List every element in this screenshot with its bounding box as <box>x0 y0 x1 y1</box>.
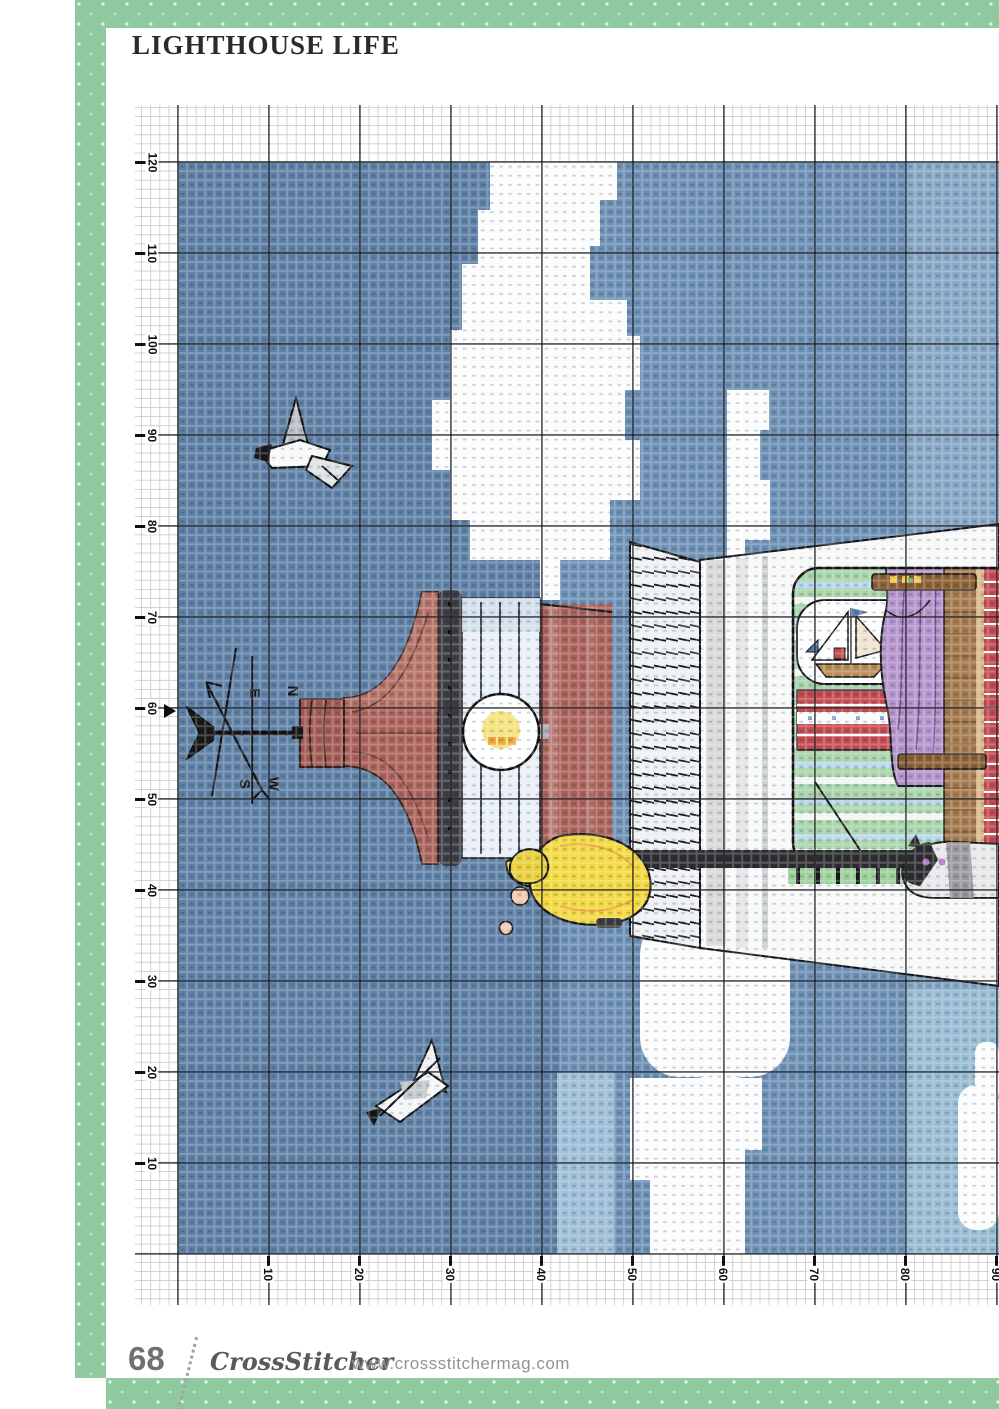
x-axis-label: 50 <box>625 1265 638 1282</box>
y-axis-label: 40 <box>145 881 158 898</box>
y-axis-label: 60 <box>145 699 158 716</box>
page-frame-bottom <box>106 1378 999 1409</box>
page-frame-top <box>75 0 999 28</box>
magazine-page: LIGHTHOUSE LIFE <box>0 0 999 1409</box>
y-axis-label: 90 <box>145 426 158 443</box>
page-title: LIGHTHOUSE LIFE <box>132 30 400 61</box>
x-axis-label: 20 <box>352 1265 365 1282</box>
x-axis-tick: 70 <box>802 1259 826 1289</box>
stitch-design: N E S W <box>135 105 999 1305</box>
y-axis-tick: 90 <box>139 423 165 447</box>
y-axis-label: 100 <box>146 332 159 356</box>
x-axis-label: 40 <box>534 1265 547 1282</box>
x-axis-label: 90 <box>989 1265 999 1282</box>
y-axis-label: 30 <box>145 972 158 989</box>
x-axis-label: 30 <box>443 1265 456 1282</box>
x-axis-tick: 60 <box>711 1259 735 1289</box>
y-axis-tick: 40 <box>139 878 165 902</box>
y-axis-label: 80 <box>145 517 158 534</box>
y-axis-tick: 30 <box>139 969 165 993</box>
y-axis-label: 10 <box>145 1154 158 1171</box>
x-axis-tick: 50 <box>620 1259 644 1289</box>
y-axis-tick: 70 <box>139 605 165 629</box>
x-axis-tick: 80 <box>893 1259 917 1289</box>
y-axis-tick: 20 <box>139 1060 165 1084</box>
x-axis-tick: 30 <box>438 1259 462 1289</box>
x-axis-tick: 40 <box>529 1259 553 1289</box>
y-axis-label: 70 <box>145 608 158 625</box>
x-axis-tick: 20 <box>347 1259 371 1289</box>
stitch-texture <box>178 162 999 1254</box>
y-axis-tick: 110 <box>139 241 165 265</box>
y-axis-label: 120 <box>146 150 159 174</box>
y-axis-tick: 100 <box>139 332 165 356</box>
page-frame-left <box>75 0 106 1378</box>
x-axis-label: 60 <box>716 1265 729 1282</box>
x-axis-tick: 10 <box>256 1259 280 1289</box>
x-axis-label: 10 <box>261 1265 274 1282</box>
x-axis-label: 70 <box>807 1265 820 1282</box>
y-axis-label: 20 <box>145 1063 158 1080</box>
cross-stitch-chart: N E S W <box>135 105 999 1305</box>
y-axis-tick: 120 <box>139 150 165 174</box>
x-axis-tick: 90 <box>984 1259 999 1289</box>
x-axis-label: 80 <box>898 1265 911 1282</box>
y-axis-label: 50 <box>145 790 158 807</box>
y-axis-tick: 60 <box>139 696 165 720</box>
center-row-arrow-marker <box>164 704 176 718</box>
y-axis-tick: 80 <box>139 514 165 538</box>
y-axis-tick: 50 <box>139 787 165 811</box>
y-axis-label: 110 <box>145 241 158 264</box>
website-url: www.crossstitchermag.com <box>352 1354 570 1374</box>
y-axis-tick: 10 <box>139 1151 165 1175</box>
page-number: 68 <box>128 1340 165 1378</box>
